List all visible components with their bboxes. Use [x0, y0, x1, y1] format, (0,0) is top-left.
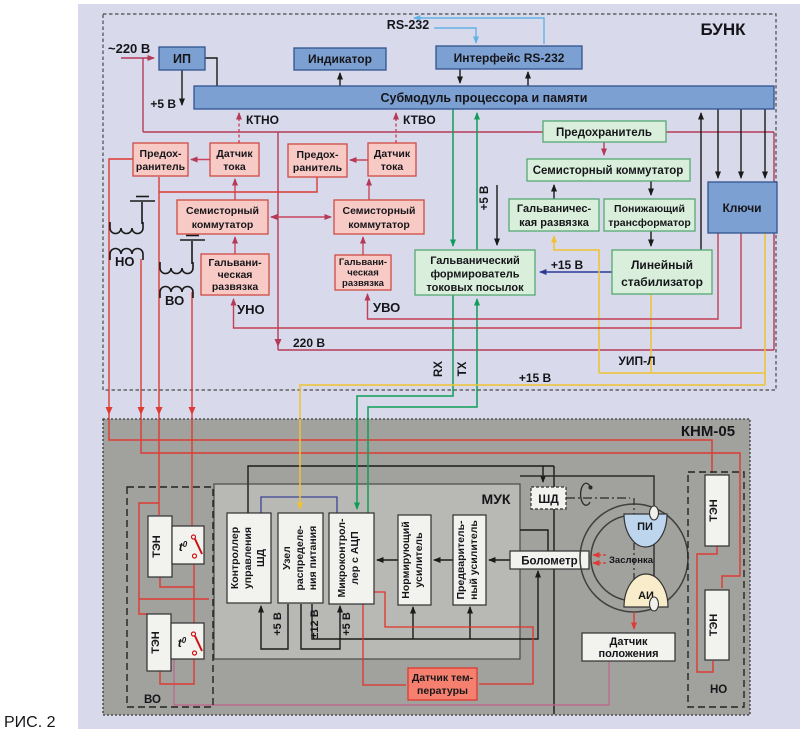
svg-text:ИП: ИП	[173, 52, 191, 66]
svg-text:ранитель: ранитель	[136, 161, 186, 173]
svg-text:НО: НО	[710, 684, 727, 696]
svg-text:формирователь: формирователь	[430, 269, 519, 281]
svg-text:ВО: ВО	[144, 694, 161, 706]
svg-text:Ключи: Ключи	[722, 201, 761, 215]
svg-text:КНМ-05: КНМ-05	[681, 423, 735, 440]
svg-text:RX: RX	[433, 361, 445, 377]
svg-text:Предохранитель: Предохранитель	[556, 127, 652, 139]
svg-text:ТЭН: ТЭН	[151, 535, 163, 558]
svg-text:тока: тока	[381, 161, 404, 173]
svg-text:пературы: пературы	[417, 685, 468, 697]
svg-text:ВО: ВО	[165, 293, 184, 308]
svg-text:Гальванический: Гальванический	[430, 255, 520, 267]
svg-text:коммутатор: коммутатор	[192, 219, 254, 231]
svg-text:кая развязка: кая развязка	[519, 217, 590, 229]
svg-text:ТЭН: ТЭН	[708, 614, 720, 637]
svg-text:ШД: ШД	[255, 548, 267, 567]
svg-text:управления: управления	[242, 527, 254, 589]
svg-text:ческая: ческая	[347, 268, 379, 279]
svg-text:ТЭН: ТЭН	[708, 499, 720, 522]
svg-text:усилитель: усилитель	[413, 532, 425, 588]
svg-text:Гальвани-: Гальвани-	[339, 257, 387, 268]
svg-text:+5 В: +5 В	[479, 186, 491, 211]
svg-text:НО: НО	[115, 254, 135, 269]
svg-text:УИП-Л: УИП-Л	[618, 354, 655, 368]
svg-text:развязка: развязка	[342, 278, 385, 289]
svg-text:коммутатор: коммутатор	[348, 219, 410, 231]
svg-text:Предох-: Предох-	[140, 148, 182, 160]
svg-text:ТЭН: ТЭН	[150, 631, 162, 654]
svg-text:+15 В: +15 В	[519, 371, 552, 385]
svg-text:лер с АЦП: лер с АЦП	[349, 531, 361, 584]
svg-text:Датчик: Датчик	[374, 148, 411, 160]
svg-text:Гальваничес-: Гальваничес-	[517, 203, 592, 215]
svg-text:Интерфейс RS-232: Интерфейс RS-232	[454, 51, 565, 65]
svg-text:±12 В: ±12 В	[309, 609, 321, 638]
svg-text:Гальвани-: Гальвани-	[208, 257, 262, 269]
svg-text:Заслонка: Заслонка	[609, 555, 654, 566]
svg-text:Субмодуль процессора и памяти: Субмодуль процессора и памяти	[381, 91, 588, 105]
svg-text:КТВО: КТВО	[403, 113, 436, 127]
svg-text:трансформатор: трансформатор	[608, 217, 691, 229]
svg-text:+5 В: +5 В	[341, 612, 353, 636]
svg-text:~220 В: ~220 В	[108, 41, 150, 56]
svg-text:ческая: ческая	[218, 269, 253, 281]
svg-text:ранитель: ранитель	[293, 162, 343, 174]
svg-text:Семисторный коммутатор: Семисторный коммутатор	[533, 165, 684, 177]
svg-text:Семисторный: Семисторный	[343, 205, 416, 217]
svg-text:УВО: УВО	[373, 300, 400, 315]
svg-text:МУК: МУК	[482, 491, 511, 507]
svg-text:Семисторный: Семисторный	[186, 205, 259, 217]
svg-text:БУНК: БУНК	[700, 20, 746, 39]
svg-text:стабилизатор: стабилизатор	[621, 275, 703, 289]
svg-text:Индикатор: Индикатор	[308, 52, 372, 66]
svg-text:Контроллер: Контроллер	[229, 527, 241, 589]
svg-text:ния питания: ния питания	[307, 526, 319, 591]
svg-text:УНО: УНО	[237, 302, 265, 317]
svg-text:Узел: Узел	[281, 546, 293, 570]
svg-text:+15 В: +15 В	[551, 258, 584, 272]
svg-text:Датчик: Датчик	[216, 148, 253, 160]
svg-text:распределе-: распределе-	[294, 525, 306, 591]
svg-text:220 В: 220 В	[293, 336, 325, 350]
svg-text:+5 В: +5 В	[272, 612, 284, 636]
svg-text:Предох-: Предох-	[297, 149, 339, 161]
svg-text:КТНО: КТНО	[246, 113, 279, 127]
svg-text:развязка: развязка	[212, 281, 259, 293]
svg-text:ПИ: ПИ	[637, 521, 653, 533]
svg-text:положения: положения	[598, 648, 658, 660]
svg-text:ный усилитель: ный усилитель	[468, 520, 480, 600]
svg-text:РИС. 2: РИС. 2	[4, 714, 56, 731]
svg-text:ТХ: ТХ	[457, 361, 469, 376]
svg-text:Предваритель-: Предваритель-	[455, 520, 467, 600]
svg-text:Микроконтрол-: Микроконтрол-	[336, 518, 348, 598]
svg-text:RS-232: RS-232	[387, 18, 429, 32]
svg-text:токовых посылок: токовых посылок	[426, 282, 524, 294]
svg-text:+5 В: +5 В	[150, 97, 176, 111]
svg-text:ШД: ШД	[538, 492, 559, 506]
svg-text:тока: тока	[223, 161, 246, 173]
svg-text:Датчик тем-: Датчик тем-	[412, 672, 474, 684]
svg-text:Понижающий: Понижающий	[614, 203, 685, 215]
svg-text:Линейный: Линейный	[631, 258, 693, 272]
svg-text:Датчик: Датчик	[610, 636, 648, 648]
svg-text:Болометр: Болометр	[521, 556, 577, 568]
svg-text:Нормирующий: Нормирующий	[400, 521, 412, 598]
